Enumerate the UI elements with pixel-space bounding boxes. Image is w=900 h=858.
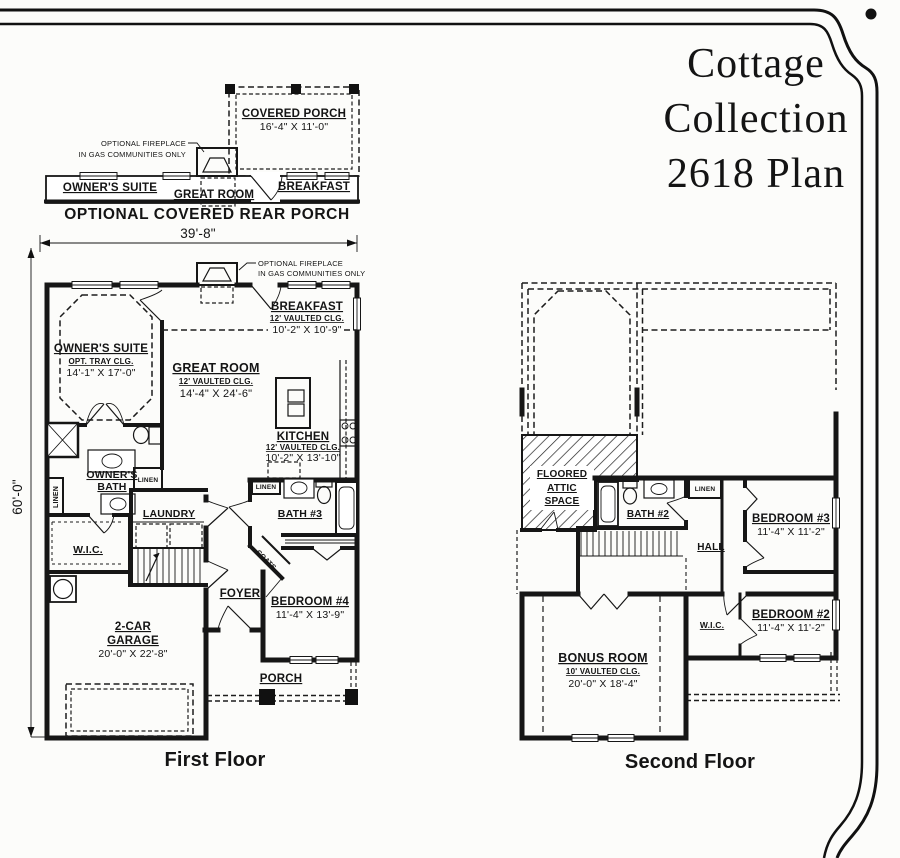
overall-depth-dim: 60'-0" (10, 479, 25, 515)
room-breakfast: BREAKFAST 12' VAULTED CLG. 10'-2" X 10'-… (270, 301, 344, 336)
porch-post (349, 84, 359, 94)
vanity-sink (284, 479, 314, 498)
bedroom2-dims: 11'-4" X 11'-2" (757, 622, 825, 634)
porch-post (291, 84, 301, 94)
garage-label-1: 2-CAR (115, 621, 152, 633)
kitchen-dims: 10'-2" X 13'-10" (265, 452, 340, 464)
room-great-room: GREAT ROOM 12' VAULTED CLG. 14'-4" X 24'… (162, 330, 357, 400)
rear-porch-option-detail: COVERED PORCH 16'-4" X 11'-0" OPTIONAL F… (46, 84, 359, 223)
room-laundry: LAUNDRY (131, 490, 228, 585)
room-bonus: BONUS ROOM 10' VAULTED CLG. 20'-0" X 18'… (522, 594, 686, 742)
title-line-3: 2618 Plan (667, 151, 845, 197)
porch-column (259, 689, 275, 705)
room-wic: W.I.C. (47, 515, 130, 585)
bathtub (598, 482, 618, 526)
water-heater (50, 576, 76, 602)
bonus-dims: 20'-0" X 18'-4" (568, 678, 637, 690)
room-bedroom3: BEDROOM #3 11'-4" X 11'-2" (745, 478, 836, 572)
plan-title: Cottage Collection 2618 Plan (664, 41, 849, 197)
fireplace-note-1: OPTIONAL FIREPLACE (258, 259, 343, 268)
rear-porch-caption: OPTIONAL COVERED REAR PORCH (64, 206, 349, 223)
front-porch: PORCH (207, 662, 358, 705)
covered-porch-label: COVERED PORCH (242, 108, 346, 120)
bedroom4-label: BEDROOM #4 (271, 596, 349, 608)
floored-attic-space: FLOORED ATTIC SPACE (522, 435, 637, 530)
bonus-ceiling: 10' VAULTED CLG. (566, 667, 640, 676)
bedroom3-label: BEDROOM #3 (752, 513, 830, 525)
linen-label: LINEN (138, 477, 159, 484)
overall-width-dim: 39'-8" (180, 226, 216, 241)
linen-label: LINEN (695, 486, 716, 493)
foyer-label: FOYER (220, 588, 261, 600)
staircase (578, 528, 683, 594)
bath3-label: BATH #3 (278, 508, 322, 520)
floor-plan-canvas: Cottage Collection 2618 Plan COVERED POR… (0, 0, 900, 858)
first-floor-caption: First Floor (164, 749, 265, 771)
toilet (316, 479, 332, 504)
vanity-sink (644, 480, 674, 498)
wic-label: W.I.C. (73, 544, 103, 556)
linen-closet: LINEN (134, 468, 162, 490)
linen-label: LINEN (53, 486, 60, 508)
toilet (623, 480, 637, 504)
owners-suite-label: OWNER'S SUITE (63, 182, 157, 194)
second-floor-caption: Second Floor (625, 751, 755, 773)
room-bath3: LINEN BATH #3 (229, 479, 357, 560)
title-line-2: Collection (664, 96, 849, 142)
porch-column (345, 689, 358, 705)
room-hall: HALL (686, 478, 725, 594)
bedroom2-label: BEDROOM #2 (752, 609, 830, 621)
coats-label: COATS (254, 549, 277, 572)
porch-post (225, 84, 235, 94)
hall-label: HALL (697, 542, 724, 553)
great-room-label: GREAT ROOM (172, 361, 259, 375)
staircase (131, 548, 206, 585)
dimension-depth: 60'-0" (10, 248, 47, 737)
covered-porch-dims: 16'-4" X 11'-0" (260, 121, 329, 133)
wic-label: W.I.C. (700, 620, 724, 630)
room-bath2: BATH #2 (598, 478, 686, 528)
breakfast-dims: 10'-2" X 10'-9" (272, 324, 341, 336)
garage-dims: 20'-0" X 22'-8" (98, 648, 167, 660)
fireplace-note-1: OPTIONAL FIREPLACE (101, 139, 186, 148)
second-floor-plan: FLOORED ATTIC SPACE BATH #2 (517, 283, 840, 773)
first-floor-plan: OPTIONAL FIREPLACE IN GAS COMMUNITIES ON… (47, 259, 365, 771)
porch-label: PORCH (260, 673, 303, 685)
dimension-width: 39'-8" (40, 226, 357, 252)
garage-label-2: GARAGE (107, 635, 159, 647)
room-wic2: W.I.C. (700, 594, 757, 658)
stove (340, 420, 357, 446)
owners-suite-dims: 14'-1" X 17'-0" (66, 367, 135, 379)
fireplace-note-2: IN GAS COMMUNITIES ONLY (258, 269, 365, 278)
great-room-dims: 14'-4" X 24'-6" (180, 388, 253, 400)
great-room-ceiling: 12' VAULTED CLG. (179, 377, 253, 386)
attic-label-3: SPACE (545, 496, 580, 507)
breakfast-ceiling: 12' VAULTED CLG. (270, 314, 344, 323)
great-room-label: GREAT ROOM (174, 189, 254, 201)
owners-suite-ceiling: OPT. TRAY CLG. (68, 357, 133, 366)
blueprint-page: Cottage Collection 2618 Plan COVERED POR… (0, 0, 900, 858)
border-corner-dot (866, 9, 877, 20)
owners-bath-label-2: BATH (97, 481, 126, 493)
owners-bath-label-1: OWNER'S (86, 469, 137, 481)
title-line-1: Cottage (687, 41, 825, 87)
toilet (134, 427, 162, 445)
linen-label: LINEN (256, 484, 277, 491)
kitchen-island (276, 378, 310, 428)
fireplace-note-2: IN GAS COMMUNITIES ONLY (79, 150, 186, 159)
room-bedroom4: BEDROOM #4 11'-4" X 13'-9" (271, 596, 349, 621)
attic-label-1: FLOORED (537, 469, 587, 480)
linen-closet: LINEN (689, 479, 721, 498)
breakfast-label: BREAKFAST (278, 181, 350, 193)
attic-label-2: ATTIC (547, 483, 577, 494)
bathtub (336, 482, 357, 534)
bedroom3-dims: 11'-4" X 11'-2" (757, 526, 825, 538)
laundry-label: LAUNDRY (143, 508, 195, 520)
room-bedroom2: BEDROOM #2 11'-4" X 11'-2" (686, 609, 836, 662)
breakfast-label: BREAKFAST (271, 301, 343, 313)
kitchen-label: KITCHEN (277, 431, 330, 443)
room-kitchen: KITCHEN 12' VAULTED CLG. 10'-2" X 13'-10… (265, 360, 357, 478)
bath2-label: BATH #2 (627, 509, 670, 520)
kitchen-ceiling: 12' VAULTED CLG. (266, 443, 340, 452)
room-foyer: FOYER (218, 572, 263, 630)
bonus-label: BONUS ROOM (558, 651, 648, 665)
owners-suite-label: OWNER'S SUITE (54, 343, 148, 355)
bedroom4-dims: 11'-4" X 13'-9" (276, 609, 345, 621)
